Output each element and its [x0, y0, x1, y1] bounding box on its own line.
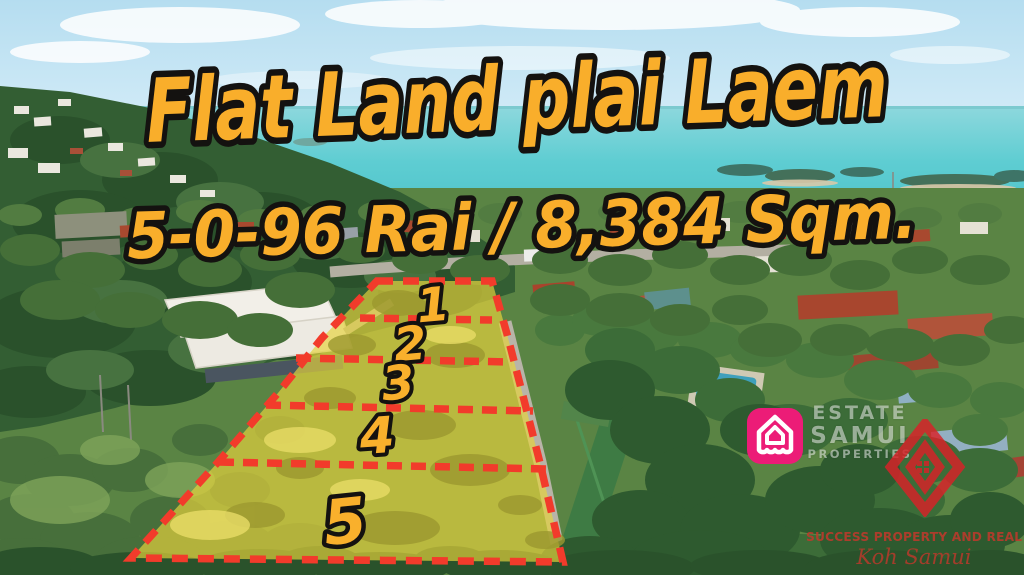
plot-number-5: 5	[320, 483, 371, 560]
land-plot-overlay: 1 2 3 4 5 Flat Land plai Laem 5-0-96 Rai…	[0, 0, 1024, 575]
diamond-icon	[891, 424, 959, 510]
real-estate-ad-image: 1 2 3 4 5 Flat Land plai Laem 5-0-96 Rai…	[0, 0, 1024, 575]
subheadline: 5-0-96 Rai / 8,384 Sqm.	[126, 180, 918, 275]
success-property-logo	[884, 419, 966, 517]
plot-number-4: 4	[357, 406, 397, 466]
highlighted-land-plot: 1 2 3 4 5	[131, 277, 565, 562]
agency-name: SUCCESS PROPERTY AND REAL ESTATE	[806, 530, 1022, 544]
agency-location: Koh Samui	[806, 545, 1022, 569]
headline: Flat Land plai Laem	[144, 34, 889, 163]
plot-number-3: 3	[379, 355, 416, 413]
agency-signature: SUCCESS PROPERTY AND REAL ESTATE Koh Sam…	[806, 530, 1022, 569]
